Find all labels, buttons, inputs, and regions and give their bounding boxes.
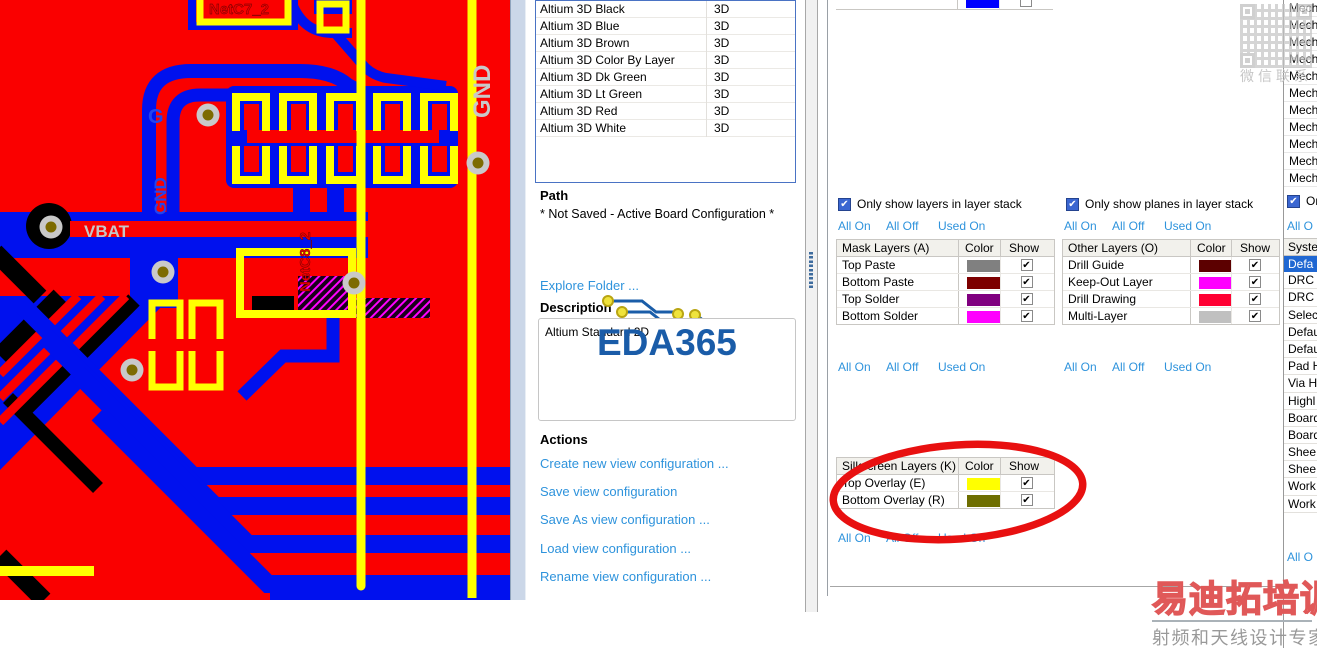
color-swatch[interactable] [967,495,1000,507]
all-off-link[interactable]: All Off [886,531,918,545]
used-on-link[interactable]: Used On [1164,360,1211,374]
show-checkbox[interactable]: ✔ [1249,259,1261,271]
far-right-all-on-link[interactable]: All O [1287,219,1313,233]
mech-layer-row[interactable]: Mech [1284,119,1317,136]
used-on-link[interactable]: Used On [1164,219,1211,233]
table-header: Mask Layers (A) Color Show [837,240,1054,257]
brand-tagline: 射频和天线设计专家 [1152,620,1312,650]
color-swatch[interactable] [1199,311,1231,323]
all-on-link[interactable]: All On [838,360,871,374]
system-color-row[interactable]: Defau [1284,324,1317,341]
path-value: * Not Saved - Active Board Configuration… [540,207,774,221]
net-label-netc7: NetC7_2 [209,1,269,18]
mech-layer-row[interactable]: Mech [1284,153,1317,170]
show-checkbox[interactable]: ✔ [1021,477,1033,489]
mask-layers-table: Mask Layers (A) Color Show Top Paste ✔ B… [836,239,1055,325]
table-row: Bottom Overlay (R) ✔ [837,492,1054,508]
show-checkbox[interactable]: ✔ [1021,494,1033,506]
view-config-list: Altium 3D Black3D Altium 3D Blue3D Altiu… [535,0,796,183]
color-swatch[interactable] [1199,260,1231,272]
system-color-row[interactable]: Via H [1284,375,1317,392]
silkscreen-filter-links: All On All Off Used On [838,531,998,545]
only-show-layers-checkbox[interactable]: ✔ [838,198,851,211]
net-label-g: G [148,106,164,128]
show-checkbox[interactable]: ✔ [1249,293,1261,305]
table-row: Multi-Layer ✔ [1063,308,1279,324]
table-row: Drill Drawing ✔ [1063,291,1279,308]
pcb-edge-strip [510,0,526,600]
color-swatch[interactable] [967,277,1000,289]
list-item[interactable]: Altium 3D Red3D [536,103,795,120]
action-load-config[interactable]: Load view configuration ... [540,541,691,556]
all-off-link[interactable]: All Off [886,219,918,233]
system-color-row[interactable]: DRC [1284,289,1317,306]
mech-layer-row[interactable]: Mech [1284,170,1317,187]
system-color-row[interactable]: DRC [1284,272,1317,289]
net-label-netc8: NetC8_2 [297,232,314,292]
only-show-layers-row: ✔ Only show layers in layer stack [838,197,1022,211]
qr-finder-icon [1297,4,1312,19]
used-on-link[interactable]: Used On [938,531,985,545]
mask-filter-links-bottom: All On All Off Used On [838,360,998,374]
table-row: Top Paste ✔ [837,257,1054,274]
splitter-grip-icon [809,252,813,290]
used-on-link[interactable]: Used On [938,360,985,374]
net-label-gnd-left: GND [151,177,170,215]
list-item[interactable]: Altium 3D Black3D [536,1,795,18]
show-checkbox[interactable]: ✔ [1021,310,1033,322]
action-rename-config[interactable]: Rename view configuration ... [540,569,711,584]
other-filter-links: All On All Off Used On [1064,219,1224,233]
table-row: Top Overlay (E) ✔ [837,475,1054,492]
system-color-row[interactable]: Board [1284,427,1317,444]
color-swatch[interactable] [1199,294,1231,306]
all-on-link[interactable]: All On [838,531,871,545]
path-heading: Path [540,188,568,203]
table-row: Bottom Solder ✔ [837,308,1054,324]
qr-finder-icon [1240,4,1255,19]
panel-splitter[interactable] [805,0,818,612]
all-off-link[interactable]: All Off [1112,360,1144,374]
right-panel-divider [827,0,828,596]
table-row: Top Solder ✔ [837,291,1054,308]
far-right-all-on-link-bottom[interactable]: All O [1287,550,1313,564]
system-color-row[interactable]: Highl [1284,393,1317,410]
only-show-layers-label: Only show layers in layer stack [857,197,1022,211]
color-swatch[interactable] [966,0,999,8]
list-item[interactable]: Altium 3D Dk Green3D [536,69,795,86]
system-colors-header: Syste [1284,238,1317,256]
list-column-divider [706,1,707,137]
color-swatch[interactable] [967,478,1000,490]
net-label-vbat: VBAT [84,222,130,241]
table-header: Other Layers (O) Color Show [1063,240,1279,257]
actions-heading: Actions [540,432,588,447]
table-row: Drill Guide ✔ [1063,257,1279,274]
all-on-link[interactable]: All On [838,219,871,233]
show-checkbox[interactable]: ✔ [1021,259,1033,271]
far-right-checkbox[interactable]: ✔ [1287,195,1300,208]
show-checkbox[interactable] [1020,0,1032,7]
only-show-planes-row: ✔ Only show planes in layer stack [1066,197,1253,211]
pcb-view[interactable]: NetC7_2 GND GND G VBAT NetC8_2 [0,0,510,600]
other-layers-table: Other Layers (O) Color Show Drill Guide … [1062,239,1280,325]
show-checkbox[interactable]: ✔ [1249,276,1261,288]
table-row: Bottom Paste ✔ [837,274,1054,291]
table-header: Silkscreen Layers (K) Color Show [837,458,1054,475]
silkscreen-layers-table: Silkscreen Layers (K) Color Show Top Ove… [836,457,1055,509]
list-item[interactable]: Altium 3D Lt Green3D [536,86,795,103]
color-swatch[interactable] [1199,277,1231,289]
mech-layer-row[interactable]: Mech [1284,136,1317,153]
action-create-config[interactable]: Create new view configuration ... [540,456,729,471]
all-on-link[interactable]: All On [1064,360,1097,374]
color-swatch[interactable] [967,294,1000,306]
all-off-link[interactable]: All Off [886,360,918,374]
mask-filter-links: All On All Off Used On [838,219,998,233]
only-show-planes-label: Only show planes in layer stack [1085,197,1253,211]
mech-layer-row[interactable]: Mech [1284,102,1317,119]
list-item[interactable]: Altium 3D White3D [536,120,795,137]
system-color-row[interactable]: Work [1284,478,1317,495]
brand-watermark: 易迪拓培训 [1152,580,1317,618]
list-item[interactable]: Altium 3D Brown3D [536,35,795,52]
system-color-row-selected[interactable]: Defa [1284,256,1317,272]
system-colors-list: Defa DRC DRC Selec Defau Defau Pad H Via… [1284,256,1317,513]
far-right-checkbox-row: ✔ On [1287,194,1317,208]
only-show-planes-checkbox[interactable]: ✔ [1066,198,1079,211]
truncated-layer-row [836,0,1055,10]
system-color-row[interactable]: Shee [1284,461,1317,478]
qr-code-watermark [1240,4,1312,68]
system-color-row[interactable]: Pad H [1284,358,1317,375]
action-save-as-config[interactable]: Save As view configuration ... [540,512,710,527]
table-row: Keep-Out Layer ✔ [1063,274,1279,291]
show-checkbox[interactable]: ✔ [1249,310,1261,322]
color-swatch[interactable] [967,311,1000,323]
net-label-gnd-right: GND [469,65,496,118]
show-checkbox[interactable]: ✔ [1021,276,1033,288]
eda365-watermark: EDA365 [597,322,737,364]
system-color-row[interactable]: Shee [1284,444,1317,461]
all-on-link[interactable]: All On [1064,219,1097,233]
color-swatch[interactable] [967,260,1000,272]
system-color-row[interactable]: Defau [1284,341,1317,358]
qr-caption: 微信联系 [1240,66,1316,86]
system-color-row[interactable]: Board [1284,410,1317,427]
list-item[interactable]: Altium 3D Color By Layer3D [536,52,795,69]
action-save-config[interactable]: Save view configuration [540,484,677,499]
used-on-link[interactable]: Used On [938,219,985,233]
other-filter-links-bottom: All On All Off Used On [1064,360,1224,374]
far-right-panel: Mech Mech Mech Mech Mech Mech Mech Mech … [1283,0,1317,648]
show-checkbox[interactable]: ✔ [1021,293,1033,305]
system-color-row[interactable]: Work [1284,496,1317,513]
explore-folder-link[interactable]: Explore Folder ... [540,278,639,293]
system-color-row[interactable]: Selec [1284,307,1317,324]
mech-layer-row[interactable]: Mech [1284,85,1317,102]
all-off-link[interactable]: All Off [1112,219,1144,233]
list-item[interactable]: Altium 3D Blue3D [536,18,795,35]
